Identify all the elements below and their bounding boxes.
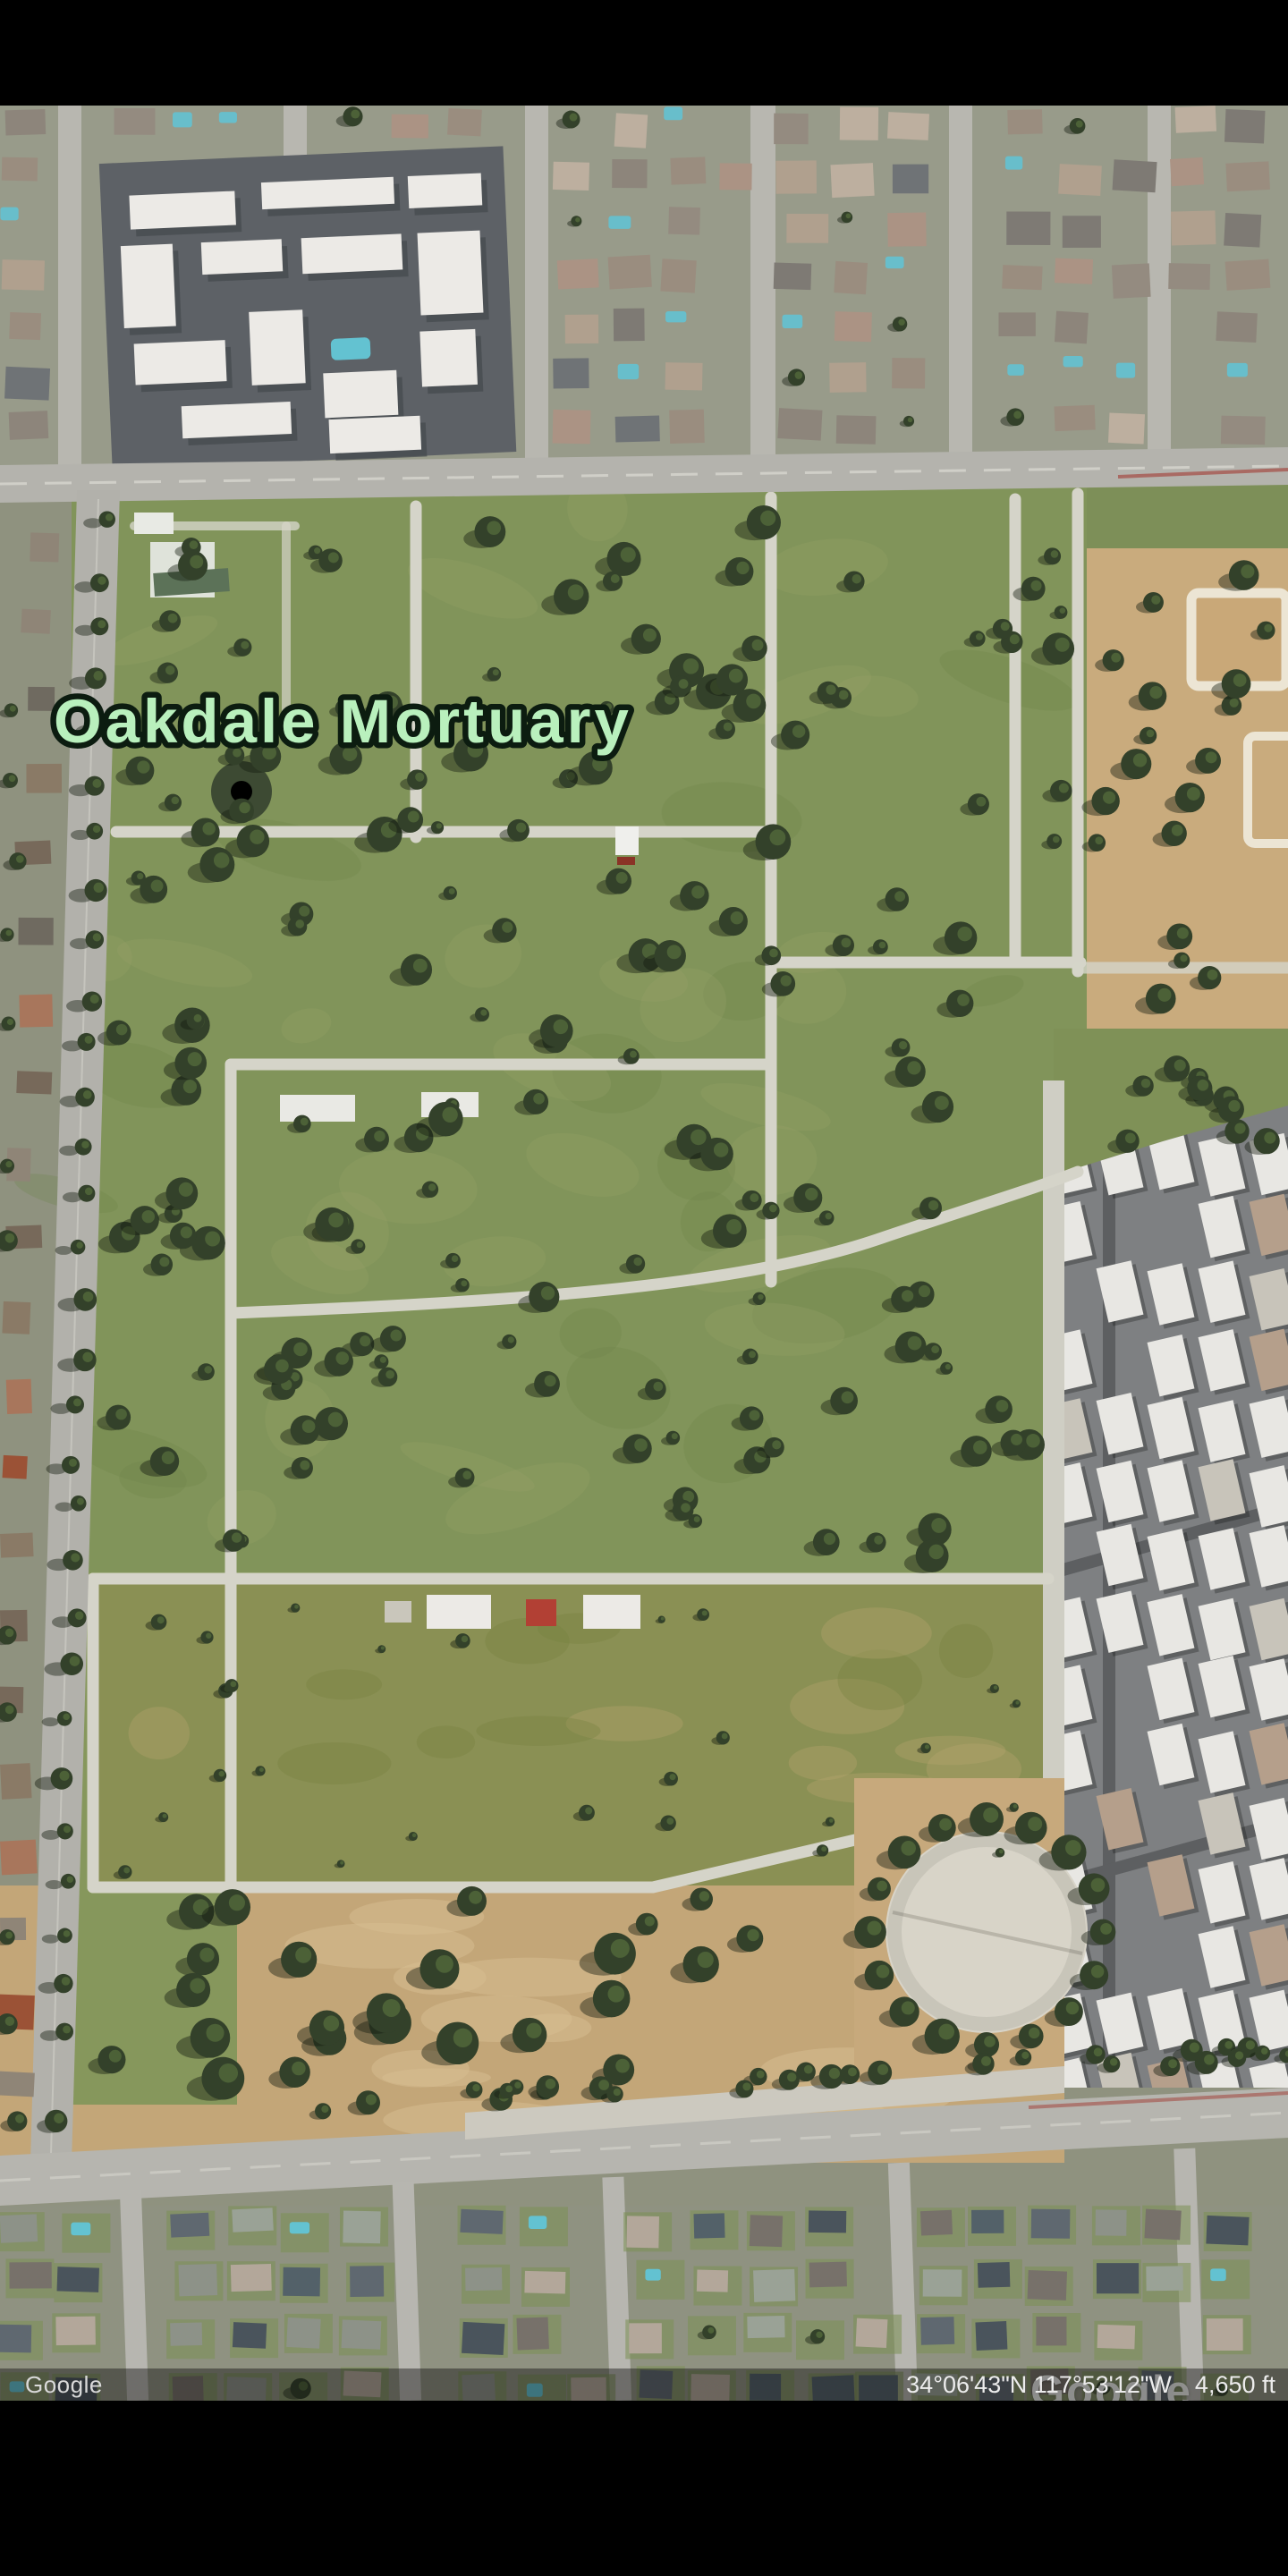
top-letterbox-bar (0, 0, 1288, 106)
white-shed (615, 826, 639, 855)
bottom-letterbox-bar (0, 2401, 1288, 2576)
attribution-text: Google (25, 2371, 103, 2399)
satellite-map[interactable]: Oakdale Mortuary Oakdale Mortuary Google (0, 106, 1288, 2401)
top-neighborhood (0, 106, 1288, 474)
place-label[interactable]: Oakdale Mortuary Oakdale Mortuary (54, 687, 632, 756)
lat-lon-text: 34°06'43"N 117°53'12"W (906, 2371, 1172, 2399)
red-roof-building (526, 1599, 556, 1626)
apartment-pool (331, 337, 371, 360)
status-bar: Google 34°06'43"N 117°53'12"W 4,650 ft (0, 2368, 1288, 2401)
aerial-imagery: Oakdale Mortuary Oakdale Mortuary (0, 106, 1288, 2401)
coordinates-readout: 34°06'43"N 117°53'12"W 4,650 ft (906, 2371, 1275, 2399)
google-earth-screen: Oakdale Mortuary Oakdale Mortuary Google… (0, 0, 1288, 2576)
place-label-text: Oakdale Mortuary (54, 687, 632, 756)
apartment-complex (99, 146, 517, 470)
altitude-readout: 4,650 ft (1195, 2371, 1275, 2399)
